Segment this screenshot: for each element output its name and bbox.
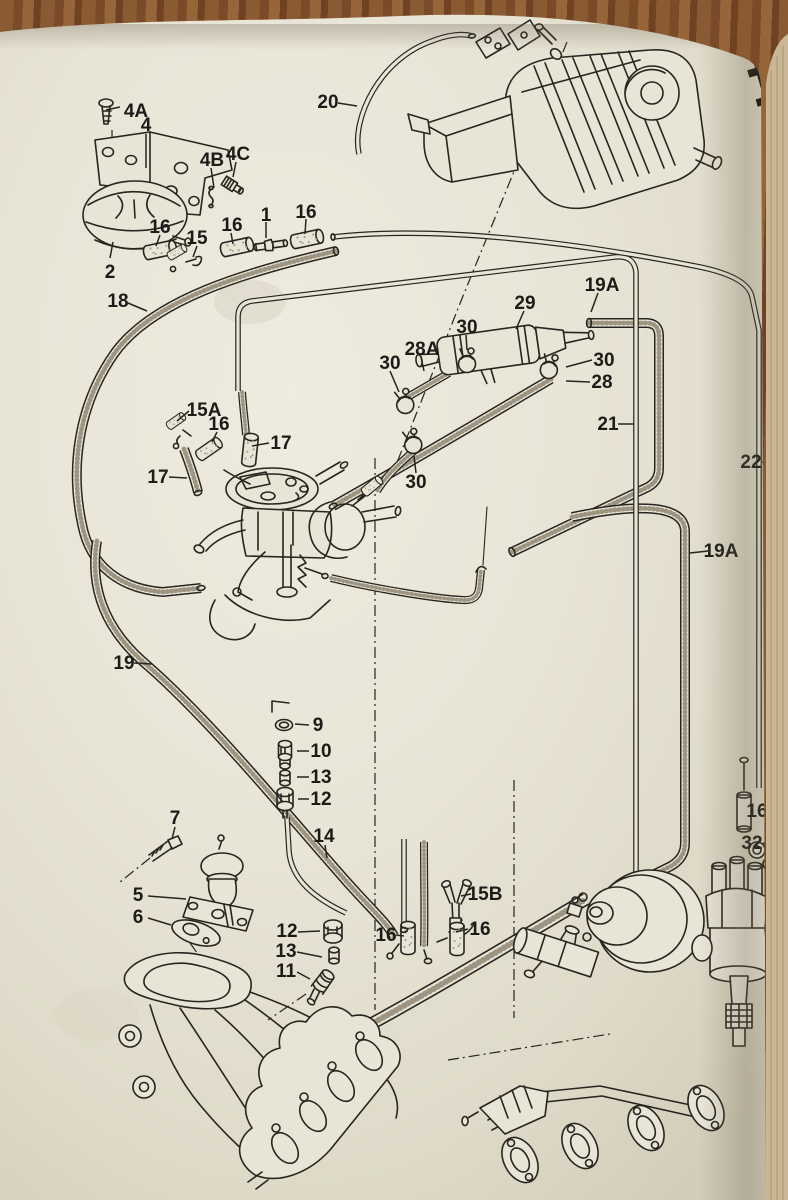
callout-28a: 28A <box>405 339 440 360</box>
callout-4c: 4C <box>226 144 251 165</box>
callout-12: 12 <box>310 789 331 810</box>
callout-20: 20 <box>317 92 338 113</box>
callout-30: 30 <box>593 350 614 371</box>
callout-13: 13 <box>310 767 331 788</box>
sleeve-16-bottom-right <box>450 922 464 955</box>
callout-19a: 19A <box>585 275 620 296</box>
callout-6: 6 <box>133 907 144 928</box>
callout-29: 29 <box>514 293 535 314</box>
callout-16: 16 <box>208 414 229 435</box>
callout-11: 11 <box>276 961 297 982</box>
callout-30: 30 <box>379 353 400 374</box>
callout-19: 19 <box>113 653 134 674</box>
callout-16: 16 <box>149 217 170 238</box>
callout-10: 10 <box>310 741 331 762</box>
callout-12: 12 <box>276 921 297 942</box>
callout-21: 21 <box>597 414 619 435</box>
callout-1: 1 <box>261 205 272 226</box>
hose-17-vertical <box>242 392 246 435</box>
callout-15: 15 <box>186 228 208 249</box>
callout-5: 5 <box>133 885 144 906</box>
callout-16: 16 <box>375 925 396 946</box>
callout-13: 13 <box>275 941 296 962</box>
callout-16: 16 <box>221 215 242 236</box>
callout-9: 9 <box>313 715 324 736</box>
callout-30: 30 <box>405 472 426 493</box>
callout-2: 2 <box>105 262 116 283</box>
callout-7: 7 <box>170 808 181 829</box>
callout-14: 14 <box>313 826 335 847</box>
callout-18: 18 <box>107 291 128 312</box>
callout-15b: 15B <box>468 884 503 905</box>
callout-4: 4 <box>141 115 152 136</box>
sleeve-16-bottom-left <box>401 921 415 954</box>
connector-17 <box>241 433 258 467</box>
book-photo: 4A 4 4B 4C 2 16 15 16 1 16 18 20 15A 16 … <box>0 0 788 1200</box>
callout-16: 16 <box>295 202 316 223</box>
callout-16: 16 <box>469 919 490 940</box>
callout-17: 17 <box>147 467 168 488</box>
page-edge-stack <box>766 34 788 1200</box>
callout-28: 28 <box>591 372 612 393</box>
callout-30: 30 <box>456 317 477 338</box>
callout-17: 17 <box>270 433 291 454</box>
callout-4b: 4B <box>200 150 224 171</box>
